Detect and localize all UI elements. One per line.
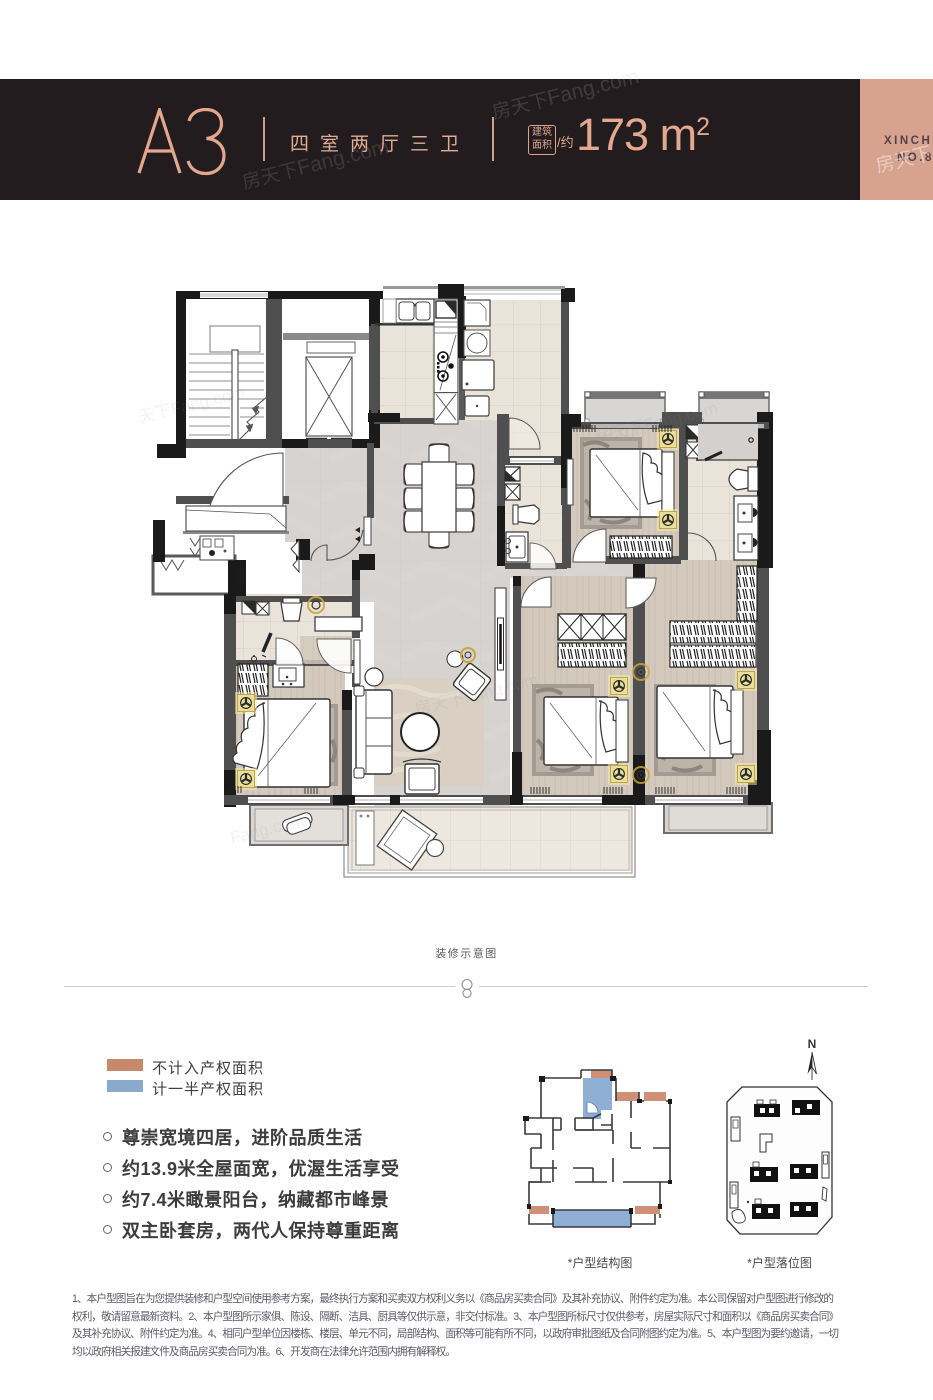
svg-text:N: N xyxy=(808,1037,817,1051)
